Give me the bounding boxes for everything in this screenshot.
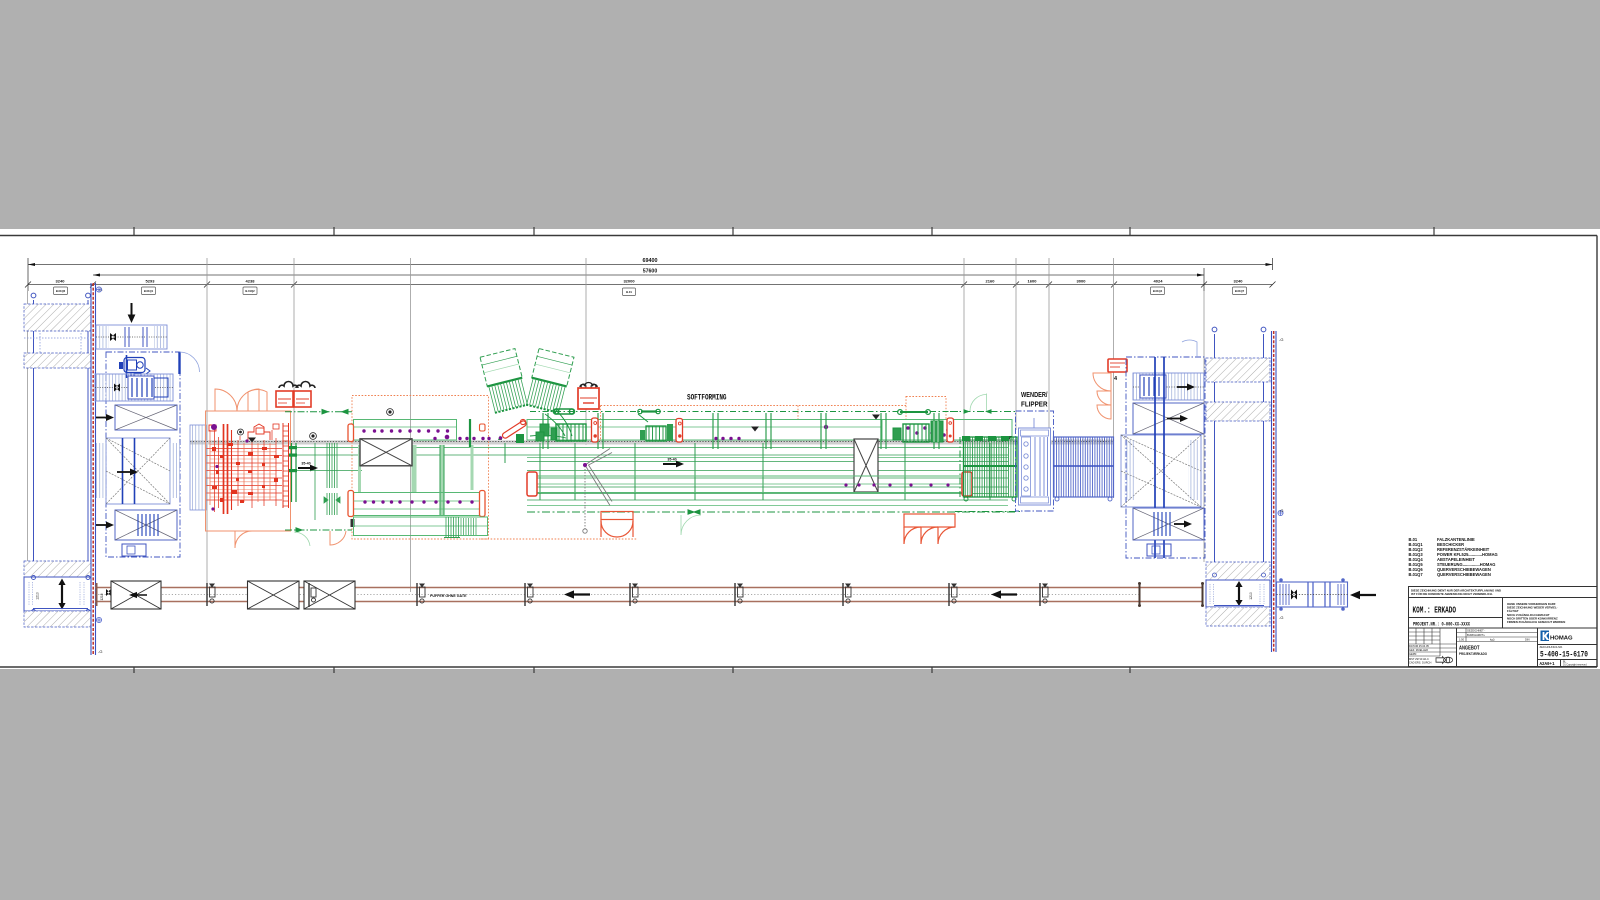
svg-text:GEPR.: GEPR. bbox=[1409, 652, 1417, 656]
svg-text:B.01Q7: B.01Q7 bbox=[1235, 289, 1245, 293]
svg-text:4024: 4024 bbox=[1154, 279, 1164, 284]
svg-text:GEZ. MUELLER: GEZ. MUELLER bbox=[1409, 648, 1428, 652]
svg-text:KOM.: ERKADO: KOM.: ERKADO bbox=[1413, 605, 1457, 616]
svg-text:-G: -G bbox=[1279, 508, 1283, 513]
svg-text:32000: 32000 bbox=[623, 279, 635, 284]
svg-text:BURKHARDT.L: BURKHARDT.L bbox=[1467, 633, 1486, 637]
svg-text:3000: 3000 bbox=[1077, 279, 1087, 284]
svg-text:1210: 1210 bbox=[1249, 592, 1253, 600]
svg-text:69400: 69400 bbox=[643, 258, 658, 264]
svg-text:57600: 57600 bbox=[643, 269, 658, 275]
svg-text:PROJEKT//ERKADO: PROJEKT//ERKADO bbox=[1459, 651, 1487, 656]
svg-text:DATUM 25.04.05: DATUM 25.04.05 bbox=[1409, 644, 1429, 648]
svg-text:3240: 3240 bbox=[1234, 279, 1244, 284]
svg-text:1210: 1210 bbox=[36, 592, 40, 600]
svg-text:WENDER/: WENDER/ bbox=[1021, 390, 1048, 399]
svg-text:PROJEKT.NR.: 0-000-XX-XXXX: PROJEKT.NR.: 0-000-XX-XXXX bbox=[1413, 622, 1470, 628]
svg-text:-G: -G bbox=[1279, 615, 1283, 620]
svg-text:PUFFER OHNE GATE: PUFFER OHNE GATE bbox=[430, 594, 467, 598]
svg-text:-G: -G bbox=[98, 649, 102, 654]
svg-text:IST FÜR DIE KONKRETE ABMESSUNG: IST FÜR DIE KONKRETE ABMESSUNG NICHT VER… bbox=[1411, 591, 1493, 596]
svg-text:B.01Q6: B.01Q6 bbox=[56, 289, 66, 293]
svg-text:1600: 1600 bbox=[1028, 279, 1038, 284]
svg-text:1215: 1215 bbox=[100, 593, 104, 600]
svg-text:B.01: B.01 bbox=[626, 290, 632, 294]
svg-text:FLIPPER: FLIPPER bbox=[1021, 400, 1048, 409]
svg-text:5-400-15-6170: 5-400-15-6170 bbox=[1540, 650, 1588, 660]
svg-text:01 Copyright reserved: 01 Copyright reserved bbox=[1563, 664, 1587, 667]
svg-text:DIN: DIN bbox=[1525, 638, 1530, 642]
svg-text:1:50: 1:50 bbox=[1459, 638, 1465, 642]
svg-text:4238: 4238 bbox=[246, 279, 256, 284]
svg-text:QUERVERSCHIEBEWAGEN: QUERVERSCHIEBEWAGEN bbox=[1437, 572, 1491, 577]
svg-text:GEZEICHNET -: GEZEICHNET - bbox=[1467, 629, 1485, 633]
svg-text:B.01Q7: B.01Q7 bbox=[1409, 572, 1424, 577]
svg-text:CAD ERS. DURCH: CAD ERS. DURCH bbox=[1409, 661, 1431, 665]
svg-text:2160: 2160 bbox=[986, 279, 996, 284]
svg-text:B.01Q2: B.01Q2 bbox=[245, 289, 255, 293]
svg-text:ZEICHNUNGS-NR.: ZEICHNUNGS-NR. bbox=[1540, 645, 1564, 649]
svg-text:A2A0+1: A2A0+1 bbox=[1540, 663, 1556, 667]
svg-text:FIRMEN ZUGÄNGLICH GEMACHT WERD: FIRMEN ZUGÄNGLICH GEMACHT WERDEN bbox=[1507, 620, 1565, 624]
svg-text:35-40: 35-40 bbox=[301, 462, 310, 466]
svg-text:HOMAG: HOMAG bbox=[1550, 636, 1573, 642]
svg-text:3240: 3240 bbox=[56, 279, 66, 284]
svg-text:-G: -G bbox=[1279, 337, 1283, 342]
svg-text:MST 29710 A0-C: MST 29710 A0-C bbox=[1409, 657, 1429, 661]
svg-text:B.01Q4: B.01Q4 bbox=[1153, 289, 1163, 293]
svg-text:B.01Q1: B.01Q1 bbox=[144, 289, 154, 293]
svg-text:5293: 5293 bbox=[146, 279, 156, 284]
svg-text:SOFTFORMING: SOFTFORMING bbox=[687, 394, 727, 403]
svg-text:35-40: 35-40 bbox=[667, 458, 676, 462]
svg-text:kg(): kg() bbox=[1490, 638, 1495, 642]
